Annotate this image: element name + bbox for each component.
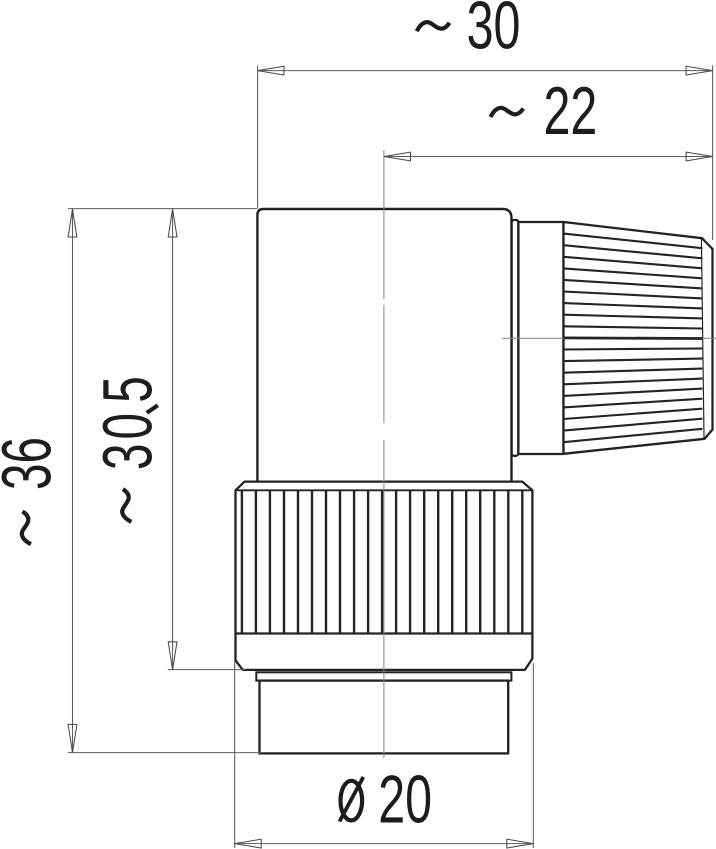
svg-text:5: 5 [88, 376, 166, 402]
svg-text:30: 30 [467, 0, 521, 64]
svg-text:3: 3 [88, 444, 166, 470]
svg-text:36: 36 [0, 437, 66, 490]
svg-text:22: 22 [544, 74, 598, 149]
svg-text:20: 20 [378, 763, 432, 838]
svg-text:0: 0 [88, 413, 166, 439]
